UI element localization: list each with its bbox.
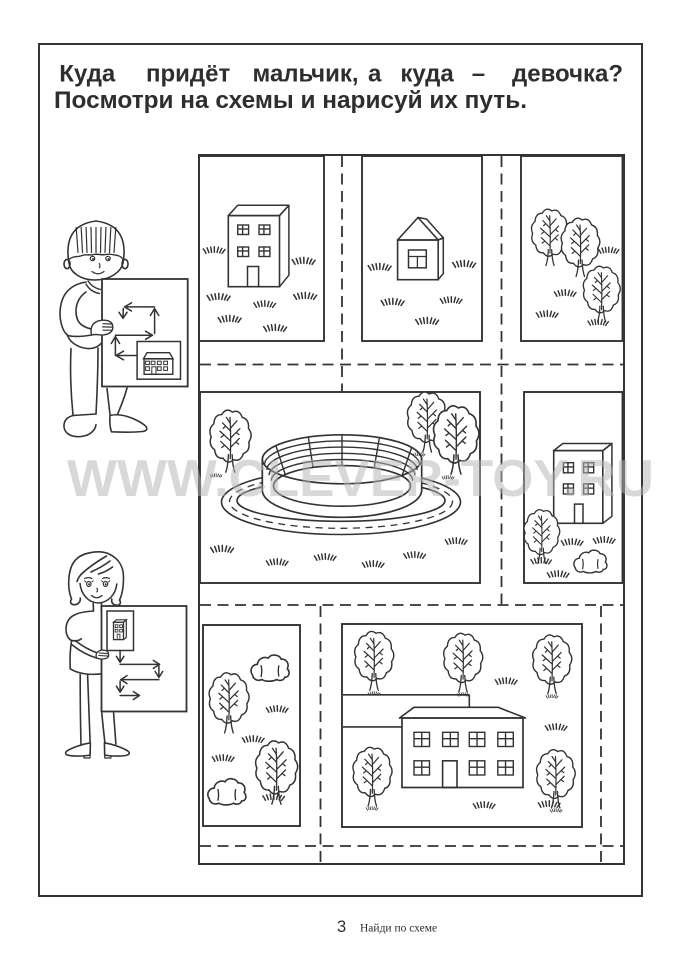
- svg-text:–: –: [472, 61, 485, 88]
- svg-text:а: а: [368, 61, 382, 88]
- svg-text:Найди по схеме: Найди по схеме: [360, 923, 437, 935]
- svg-text:девочка?: девочка?: [512, 61, 623, 88]
- svg-text:WWW.CLEVER-TOY.RU: WWW.CLEVER-TOY.RU: [67, 450, 654, 508]
- svg-text:Посмотри на схемы и нарисуй их: Посмотри на схемы и нарисуй их путь.: [54, 87, 527, 114]
- svg-text:придёт: придёт: [146, 61, 230, 88]
- svg-text:3: 3: [337, 918, 346, 936]
- svg-text:мальчик,: мальчик,: [253, 61, 359, 88]
- svg-text:Куда: Куда: [59, 61, 116, 88]
- svg-text:куда: куда: [400, 61, 454, 88]
